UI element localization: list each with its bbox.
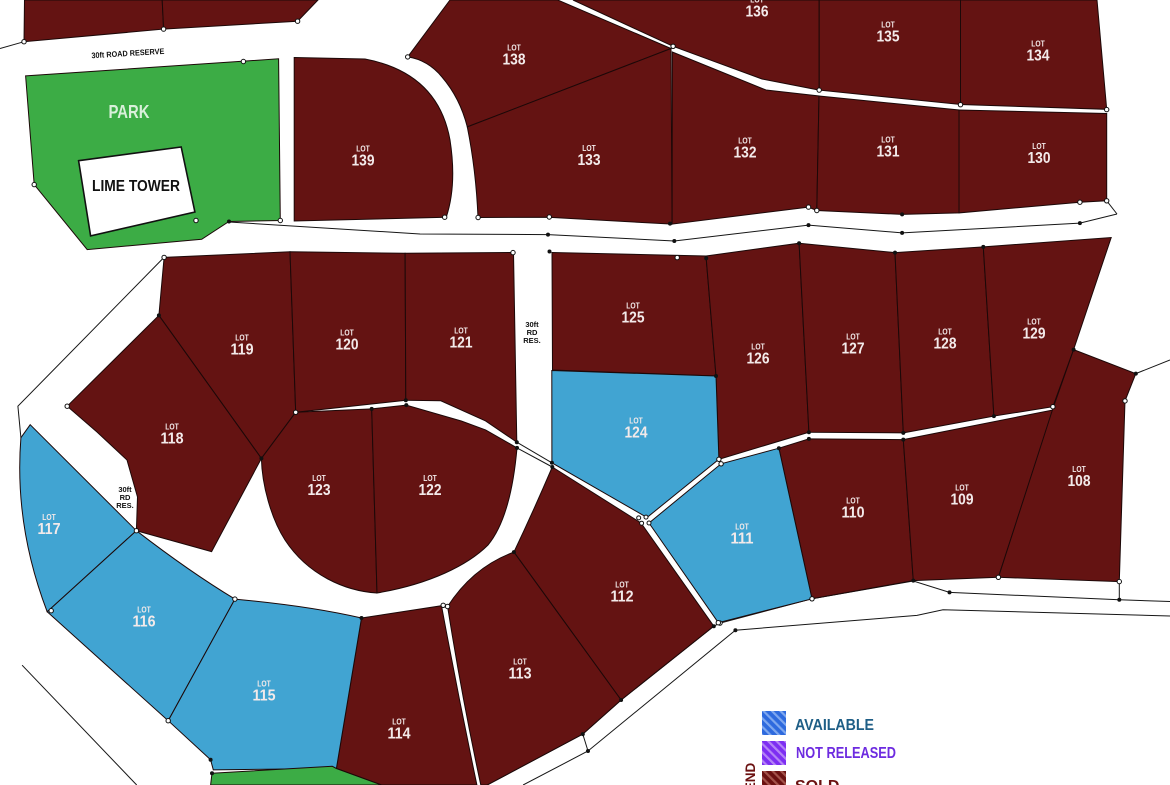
- svg-text:PARK: PARK: [109, 102, 150, 122]
- svg-text:112: 112: [611, 589, 634, 606]
- svg-text:123: 123: [308, 482, 331, 499]
- svg-text:109: 109: [951, 492, 974, 509]
- svg-text:130: 130: [1028, 150, 1051, 167]
- svg-text:122: 122: [419, 482, 442, 499]
- svg-text:132: 132: [734, 145, 757, 162]
- svg-text:129: 129: [1023, 326, 1046, 343]
- svg-text:116: 116: [133, 614, 156, 631]
- svg-text:136: 136: [746, 4, 769, 21]
- svg-text:128: 128: [934, 336, 957, 353]
- svg-text:RES.: RES.: [116, 501, 134, 510]
- svg-text:138: 138: [503, 52, 526, 69]
- svg-text:131: 131: [877, 144, 900, 161]
- svg-text:AVAILABLE: AVAILABLE: [795, 717, 874, 734]
- svg-text:115: 115: [253, 688, 276, 705]
- svg-text:134: 134: [1027, 48, 1050, 65]
- svg-text:SOLD: SOLD: [795, 778, 839, 785]
- svg-text:NOT RELEASED: NOT RELEASED: [796, 745, 896, 762]
- svg-text:135: 135: [877, 29, 900, 46]
- svg-text:121: 121: [450, 335, 473, 352]
- svg-text:125: 125: [622, 310, 645, 327]
- svg-text:124: 124: [625, 425, 648, 442]
- svg-text:111: 111: [731, 531, 754, 548]
- svg-text:127: 127: [842, 341, 865, 358]
- svg-text:126: 126: [747, 351, 770, 368]
- svg-text:133: 133: [578, 152, 601, 169]
- svg-text:118: 118: [161, 431, 184, 448]
- svg-text:LIME TOWER: LIME TOWER: [92, 178, 180, 195]
- svg-text:108: 108: [1068, 473, 1091, 490]
- svg-text:139: 139: [352, 153, 375, 170]
- svg-text:119: 119: [231, 342, 254, 359]
- svg-text:113: 113: [509, 666, 532, 683]
- svg-text:LEGEND: LEGEND: [743, 762, 758, 785]
- svg-text:114: 114: [388, 726, 411, 743]
- svg-text:RES.: RES.: [523, 336, 541, 345]
- svg-text:117: 117: [38, 521, 61, 538]
- svg-text:120: 120: [336, 337, 359, 354]
- svg-text:110: 110: [842, 505, 865, 522]
